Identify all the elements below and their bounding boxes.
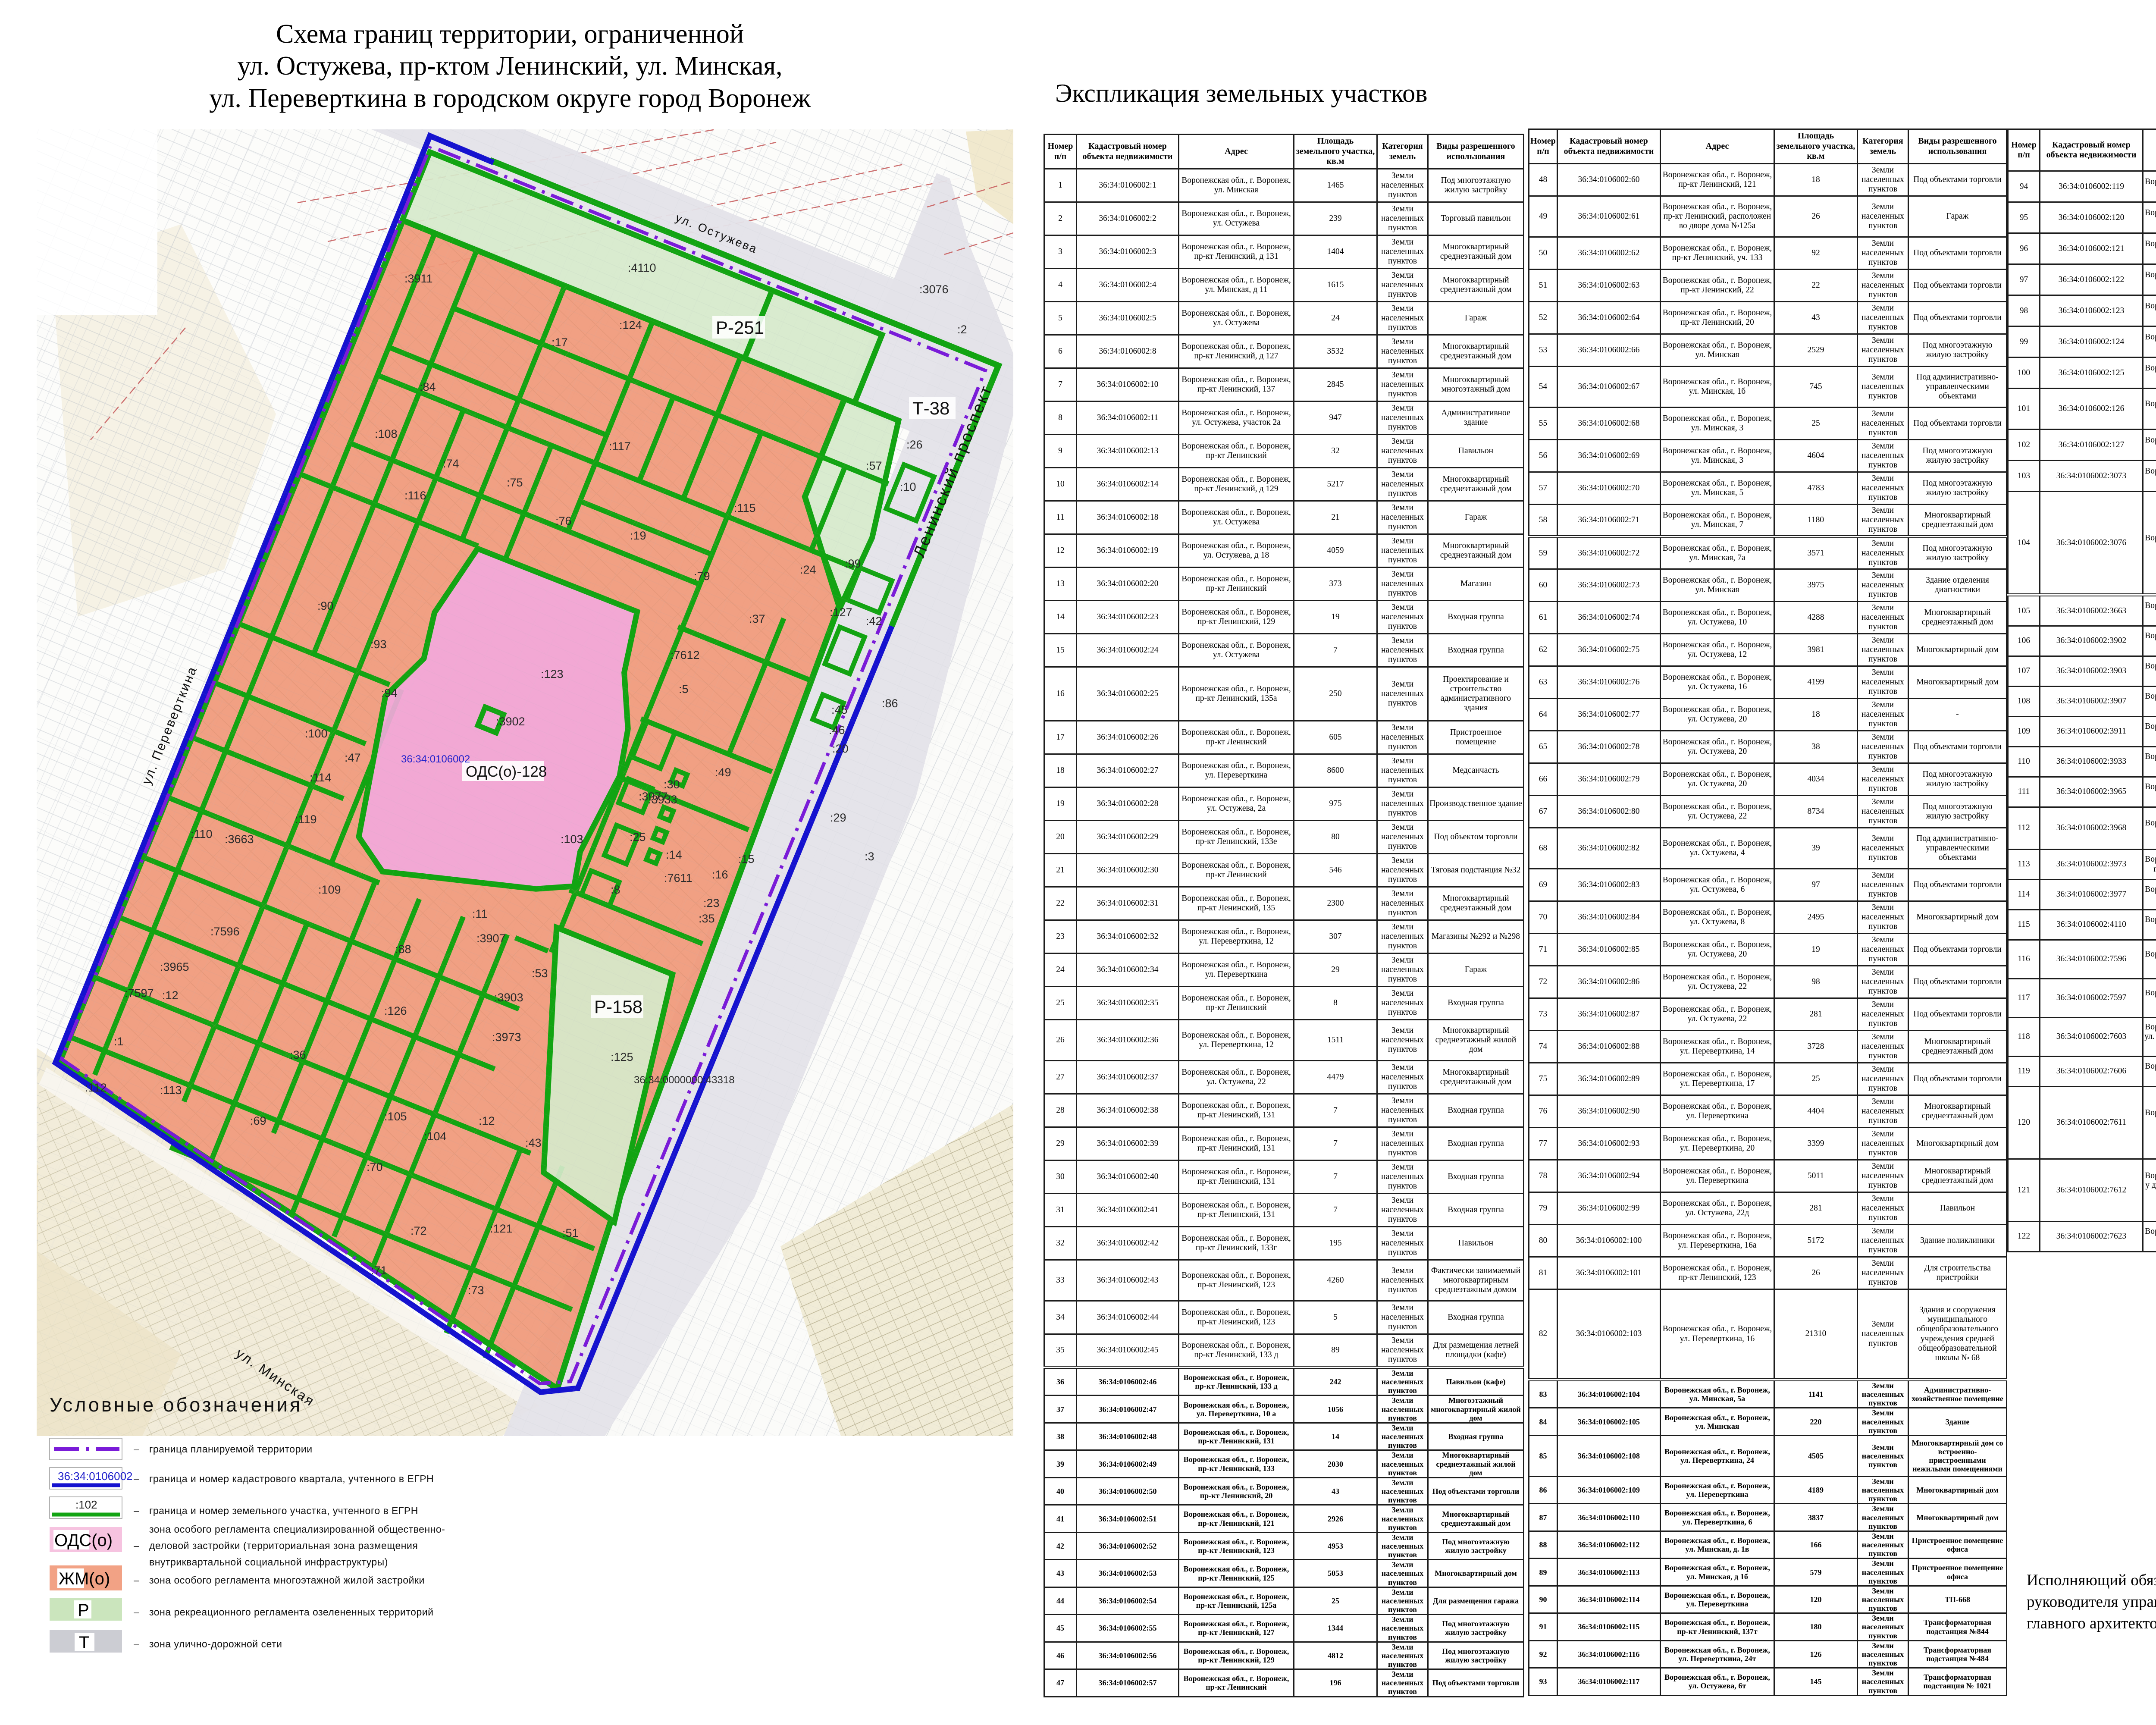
svg-text::102: :102 (75, 1498, 97, 1511)
svg-text:деловой застройки (территориал: деловой застройки (территориальная зона … (149, 1540, 418, 1551)
svg-text:ЖМ(о): ЖМ(о) (59, 1569, 110, 1588)
svg-text:–: – (134, 1473, 139, 1484)
svg-text:зона рекреационного регламента: зона рекреационного регламента озелененн… (149, 1606, 433, 1618)
svg-text:–: – (134, 1505, 139, 1516)
svg-text:граница планируемой территории: граница планируемой территории (149, 1443, 313, 1455)
svg-text:–: – (134, 1443, 139, 1455)
svg-text:зона улично-дорожной сети: зона улично-дорожной сети (149, 1638, 282, 1650)
svg-text:–: – (134, 1606, 139, 1618)
svg-text:36:34:0106002: 36:34:0106002 (58, 1470, 133, 1483)
svg-text:внутриквартальной социальной и: внутриквартальной социальной инфраструкт… (149, 1556, 388, 1568)
svg-text:Т: Т (79, 1633, 89, 1652)
svg-text:зона особого регламента специа: зона особого регламента специализированн… (149, 1524, 445, 1535)
svg-text:граница и номер земельного уча: граница и номер земельного участка, учте… (149, 1505, 418, 1516)
svg-text:граница и номер кадастрового к: граница и номер кадастрового квартала, у… (149, 1473, 434, 1484)
svg-text:Р: Р (78, 1601, 89, 1620)
svg-text:–: – (134, 1638, 139, 1650)
svg-text:–: – (134, 1574, 139, 1586)
svg-text:ОДС(о): ОДС(о) (54, 1531, 113, 1550)
svg-text:–: – (134, 1540, 139, 1551)
svg-text:зона особого регламента многоэ: зона особого регламента многоэтажной жил… (149, 1574, 425, 1586)
